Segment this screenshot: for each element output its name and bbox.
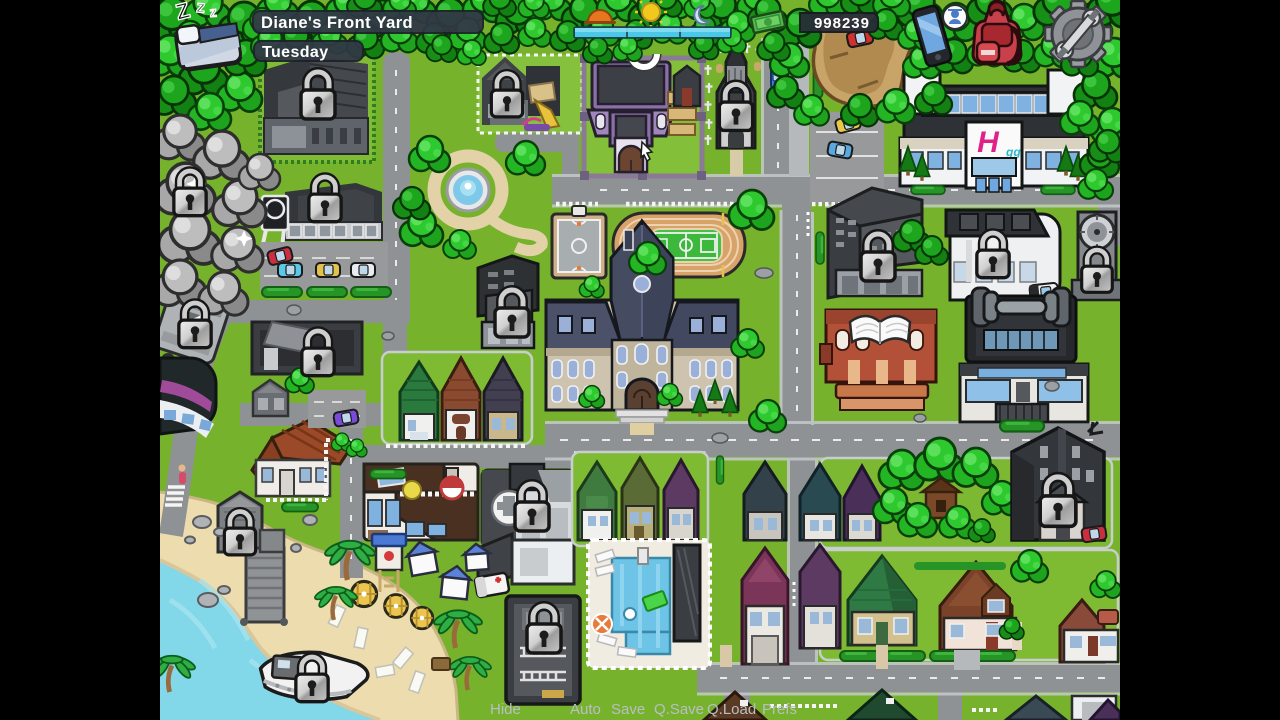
svg-text:Save: Save bbox=[611, 701, 645, 718]
svg-text:Hide: Hide bbox=[490, 701, 521, 718]
svg-text:Q.Save: Q.Save bbox=[654, 701, 704, 718]
svg-text:Diane's Front Yard: Diane's Front Yard bbox=[261, 14, 413, 32]
svg-text:gg: gg bbox=[1005, 145, 1021, 159]
svg-text:Prefs: Prefs bbox=[762, 701, 797, 718]
svg-text:Tuesday: Tuesday bbox=[262, 44, 329, 61]
svg-text:Q.Load: Q.Load bbox=[707, 701, 756, 718]
svg-text:z: z bbox=[209, 4, 217, 20]
svg-text:Auto: Auto bbox=[570, 701, 601, 718]
svg-text:998239: 998239 bbox=[814, 15, 870, 32]
svg-text:H: H bbox=[977, 126, 1000, 159]
